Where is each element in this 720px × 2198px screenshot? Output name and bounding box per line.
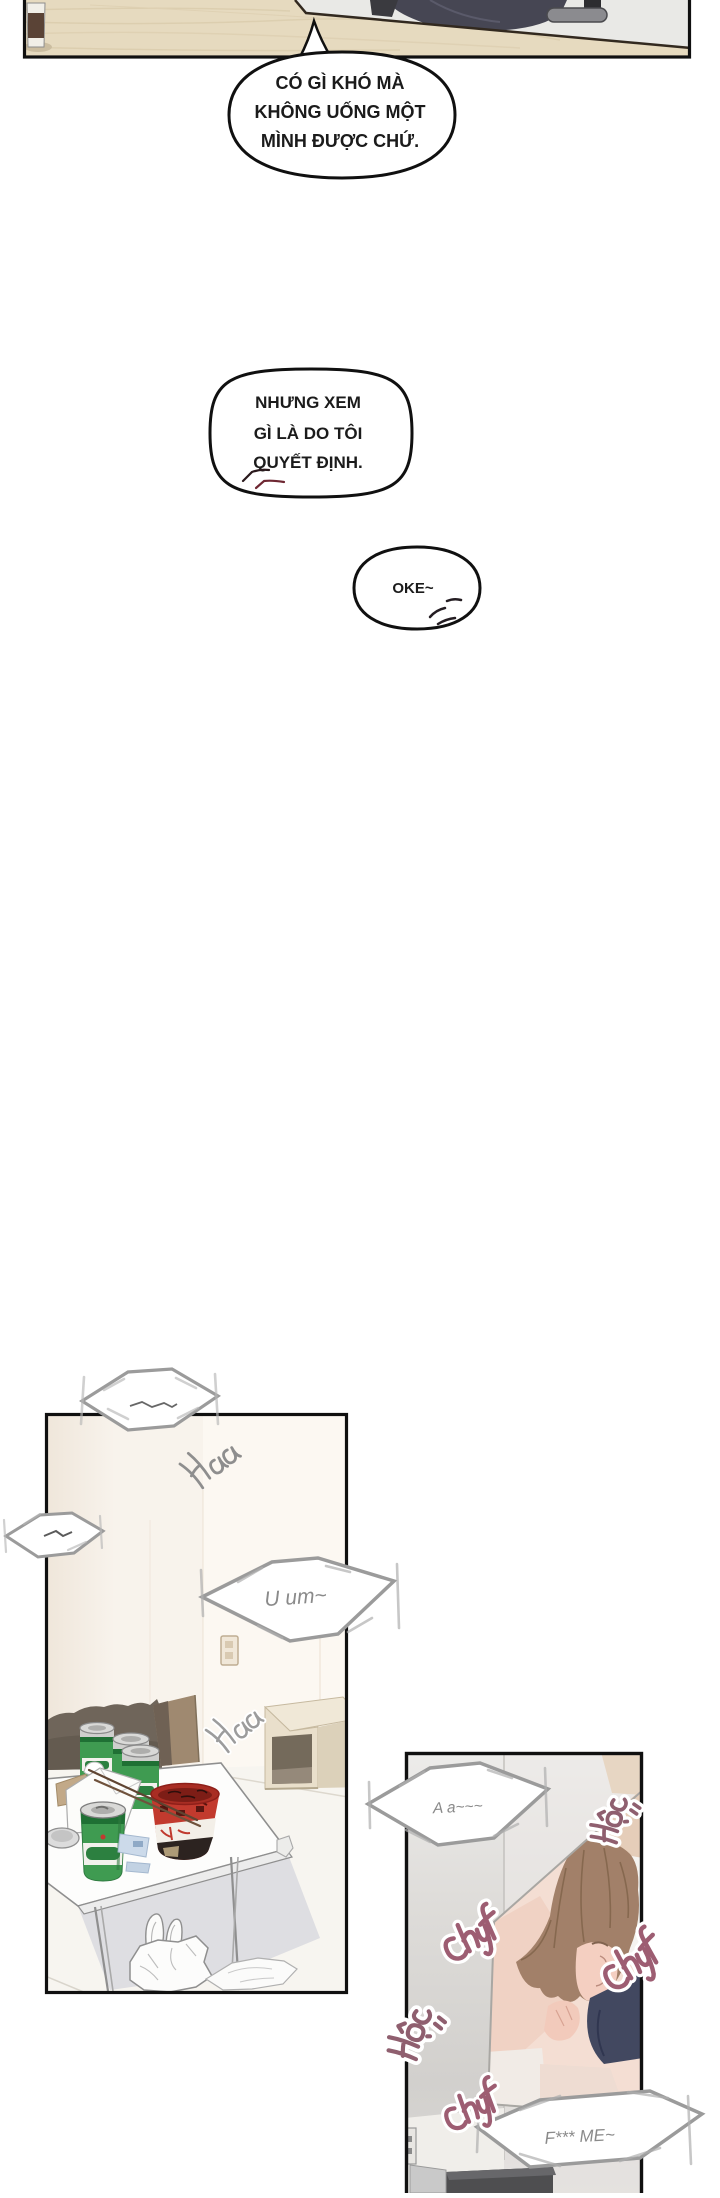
- svg-text:OKE~: OKE~: [392, 580, 434, 597]
- svg-text:NHƯNG XEM: NHƯNG XEM: [255, 393, 361, 412]
- svg-text:MÌNH ĐƯỢC CHỨ.: MÌNH ĐƯỢC CHỨ.: [261, 130, 419, 151]
- svg-text:KHÔNG UỐNG MỘT: KHÔNG UỐNG MỘT: [255, 101, 426, 122]
- svg-text:GÌ LÀ DO TÔI: GÌ LÀ DO TÔI: [254, 424, 363, 443]
- svg-text:A a~~~: A a~~~: [431, 1798, 483, 1818]
- svg-text:CÓ GÌ KHÓ MÀ: CÓ GÌ KHÓ MÀ: [276, 72, 405, 93]
- svg-text:U um~: U um~: [264, 1584, 328, 1611]
- svg-text:F*** ME~: F*** ME~: [544, 2125, 615, 2148]
